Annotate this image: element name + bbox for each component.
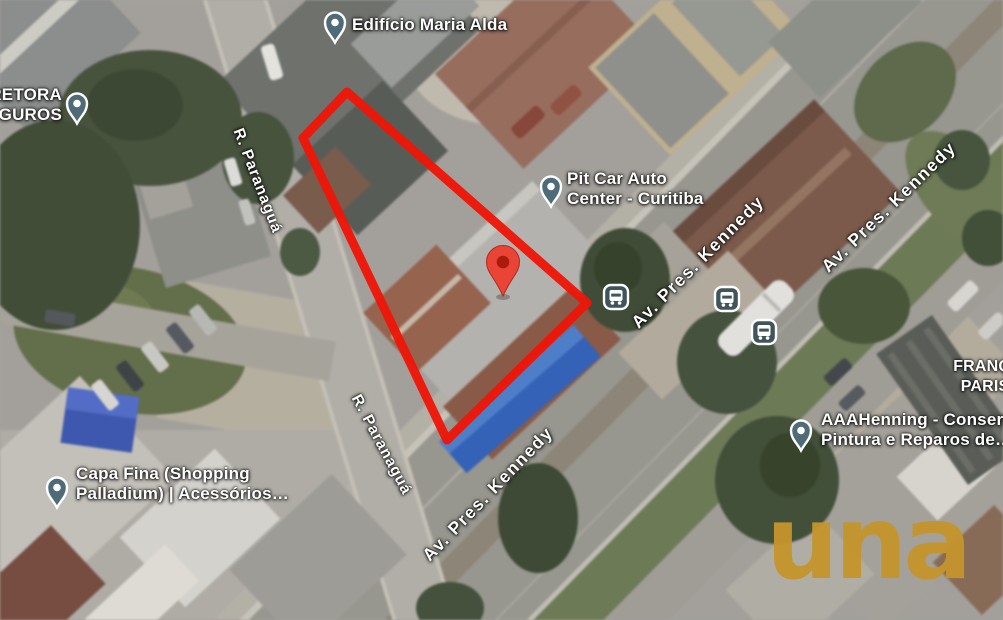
poi-label-aaahenning[interactable]: AAAHenning - Conserto, Pintura e Reparos… (821, 410, 1003, 450)
poi-label-line: Capa Fina (Shopping (76, 464, 289, 484)
poi-label-line: EGUROS (0, 105, 62, 125)
poi-label-corretora-seguros[interactable]: RETORA EGUROS (0, 85, 62, 125)
poi-label-pit-car-auto-center[interactable]: Pit Car Auto Center - Curitiba (567, 169, 704, 209)
satellite-imagery (0, 0, 1003, 620)
poi-label-franquia-paris[interactable]: FRANQUIA M PARIS CUR (905, 357, 1003, 397)
poi-label-line: Palladium) | Acessórios… (76, 484, 289, 504)
poi-label-line: Edifício Maria Alda (352, 15, 507, 35)
poi-label-line: Pit Car Auto (567, 169, 704, 189)
poi-label-edificio-maria-alda[interactable]: Edifício Maria Alda (352, 15, 507, 35)
poi-label-line: AAAHenning - Conserto, (821, 410, 1003, 430)
poi-label-line: PARIS CUR (905, 377, 1003, 397)
map-canvas[interactable]: una Edifício Maria Alda RETORA EGUROS Pi… (0, 0, 1003, 620)
poi-label-line: FRANQUIA M (905, 357, 1003, 377)
poi-label-line: Center - Curitiba (567, 189, 704, 209)
poi-label-capa-fina[interactable]: Capa Fina (Shopping Palladium) | Acessór… (76, 464, 289, 504)
poi-label-line: RETORA (0, 85, 62, 105)
poi-label-line: Pintura e Reparos de… (821, 430, 1003, 450)
